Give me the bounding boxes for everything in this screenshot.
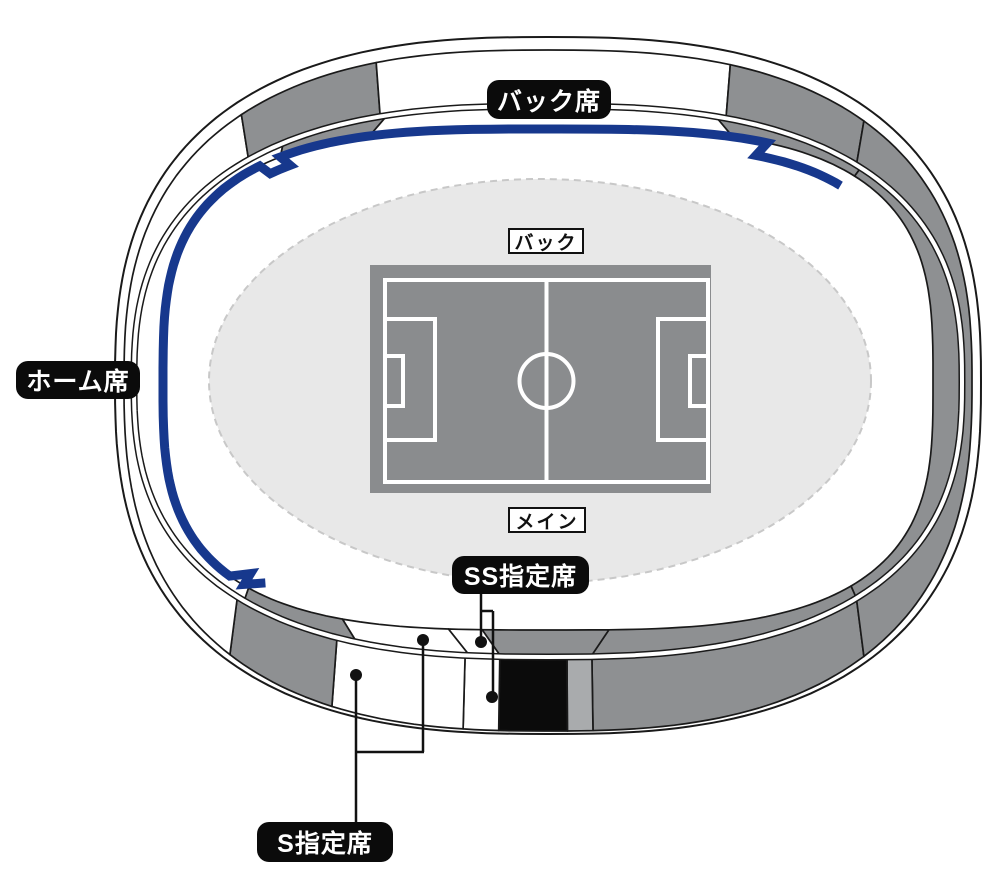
s-callout-dot bbox=[417, 634, 429, 646]
pitch-main-side-label: メイン bbox=[508, 507, 586, 533]
stadium-drawing bbox=[0, 0, 1000, 882]
ss-callout-dot bbox=[486, 691, 498, 703]
stadium-seat-map: バック席 ホーム席 SS指定席 S指定席 バック メイン bbox=[0, 0, 1000, 882]
section-outer-bottom-light-gray bbox=[567, 657, 593, 731]
section-inner-bottom-center-gray bbox=[482, 630, 609, 657]
ss-callout-dot bbox=[475, 636, 487, 648]
home-stand-label: ホーム席 bbox=[16, 361, 140, 399]
section-outer-bottom-black bbox=[499, 657, 568, 731]
back-stand-label: バック席 bbox=[487, 80, 611, 119]
pitch-back-side-label: バック bbox=[508, 228, 584, 254]
s-callout-dot bbox=[350, 669, 362, 681]
s-reserved-label: S指定席 bbox=[257, 822, 393, 862]
ss-reserved-label: SS指定席 bbox=[452, 556, 589, 594]
